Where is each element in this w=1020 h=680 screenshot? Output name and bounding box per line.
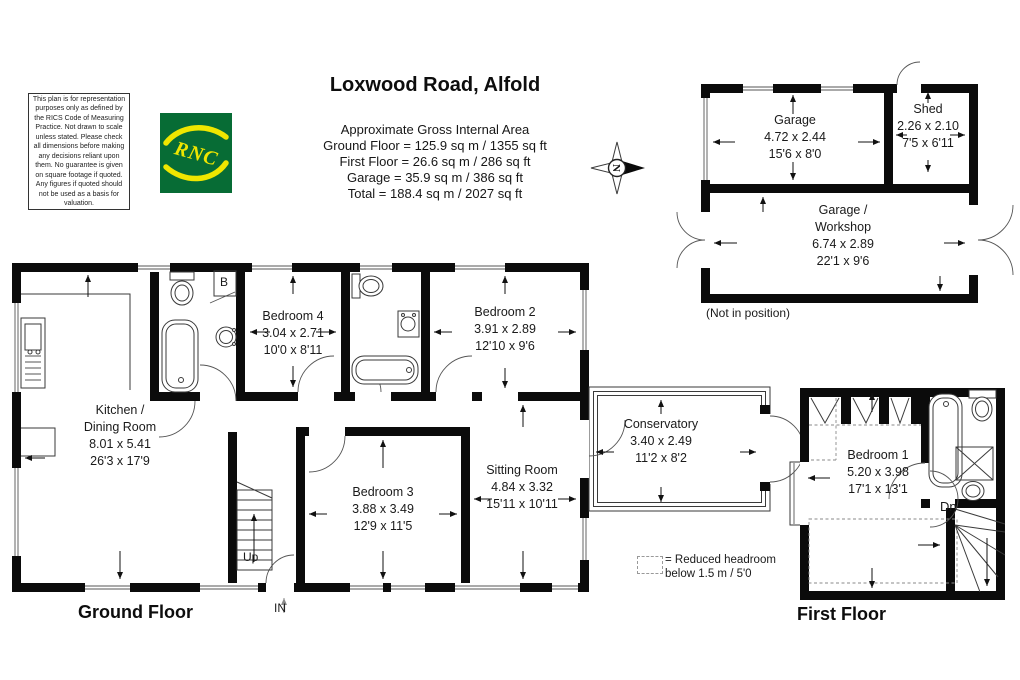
entrance-door-gap: [266, 583, 294, 592]
boiler-label: B: [220, 275, 228, 289]
room-label-bedroom1: Bedroom 1 5.20 x 3.98 17'1 x 13'1: [847, 447, 909, 498]
area-line: Total = 188.4 sq m / 2027 sq ft: [323, 186, 547, 202]
wall: [341, 263, 350, 401]
wall: [236, 263, 245, 401]
disclaimer-box: This plan is for representation purposes…: [28, 93, 130, 210]
entrance-in-label: IN: [274, 601, 286, 615]
outbuilding-note: (Not in position): [706, 306, 790, 320]
room-label-bedroom4: Bedroom 4 3.04 x 2.71 10'0 x 8'11: [262, 308, 324, 359]
area-line: First Floor = 26.6 sq m / 286 sq ft: [323, 154, 547, 170]
reduced-headroom-legend: = Reduced headroom below 1.5 m / 5'0: [665, 553, 776, 581]
wall: [421, 263, 430, 401]
wall: [391, 392, 436, 401]
stairs-up-label: Up: [243, 550, 258, 564]
ground-floor-label: Ground Floor: [78, 602, 193, 623]
wall: [150, 263, 159, 401]
area-line: Ground Floor = 125.9 sq m / 1355 sq ft: [323, 138, 547, 154]
wall: [345, 427, 470, 436]
room-label-workshop: Garage / Workshop 6.74 x 2.89 22'1 x 9'6: [812, 202, 874, 270]
wall: [461, 427, 470, 583]
logo-text: RNC: [171, 137, 220, 171]
shed-door-arc: [897, 62, 920, 85]
compass-north-label: N: [610, 164, 622, 172]
reduced-headroom-legend-swatch: [637, 556, 663, 574]
wall: [296, 427, 305, 583]
room-label-bedroom2: Bedroom 2 3.91 x 2.89 12'10 x 9'6: [474, 304, 536, 355]
room-label-bedroom3: Bedroom 3 3.88 x 3.49 12'9 x 11'5: [352, 484, 414, 535]
disclaimer-text: This plan is for representation purposes…: [32, 95, 126, 209]
wardrobe-doors: [809, 398, 921, 425]
wall: [518, 392, 589, 401]
wall: [236, 392, 298, 401]
stairs-down-label: Dn: [940, 499, 957, 514]
area-summary: Approximate Gross Internal Area Ground F…: [323, 122, 547, 202]
bathroom-1: [162, 271, 236, 392]
room-label-kitchen: Kitchen / Dining Room 8.01 x 5.41 26'3 x…: [84, 402, 156, 470]
wall: [150, 392, 200, 401]
wall: [228, 432, 237, 592]
rnc-logo: RNC: [160, 113, 232, 193]
sink-icon: [25, 324, 41, 350]
wall: [334, 392, 355, 401]
room-label-shed: Shed 2.26 x 2.10 7'5 x 6'11: [897, 101, 959, 152]
toilet-icon: [170, 272, 194, 280]
rnc-logo-graphic: RNC: [160, 113, 232, 193]
room-label-sitting-room: Sitting Room 4.84 x 3.32 15'11 x 10'11: [486, 462, 558, 513]
area-line: Garage = 35.9 sq m / 386 sq ft: [323, 170, 547, 186]
first-floor-label: First Floor: [797, 604, 886, 625]
bathroom-2: [352, 274, 419, 384]
room-label-garage: Garage 4.72 x 2.44 15'6 x 8'0: [764, 112, 826, 163]
wall: [472, 392, 482, 401]
room-label-conservatory: Conservatory 3.40 x 2.49 11'2 x 8'2: [624, 416, 698, 467]
area-heading: Approximate Gross Internal Area: [323, 122, 547, 138]
compass-icon: N: [591, 142, 645, 194]
floorplan-page: N This plan is for representation purpos…: [0, 0, 1020, 680]
logo-swoosh-top: [166, 128, 226, 143]
page-title: Loxwood Road, Alfold: [330, 74, 540, 97]
